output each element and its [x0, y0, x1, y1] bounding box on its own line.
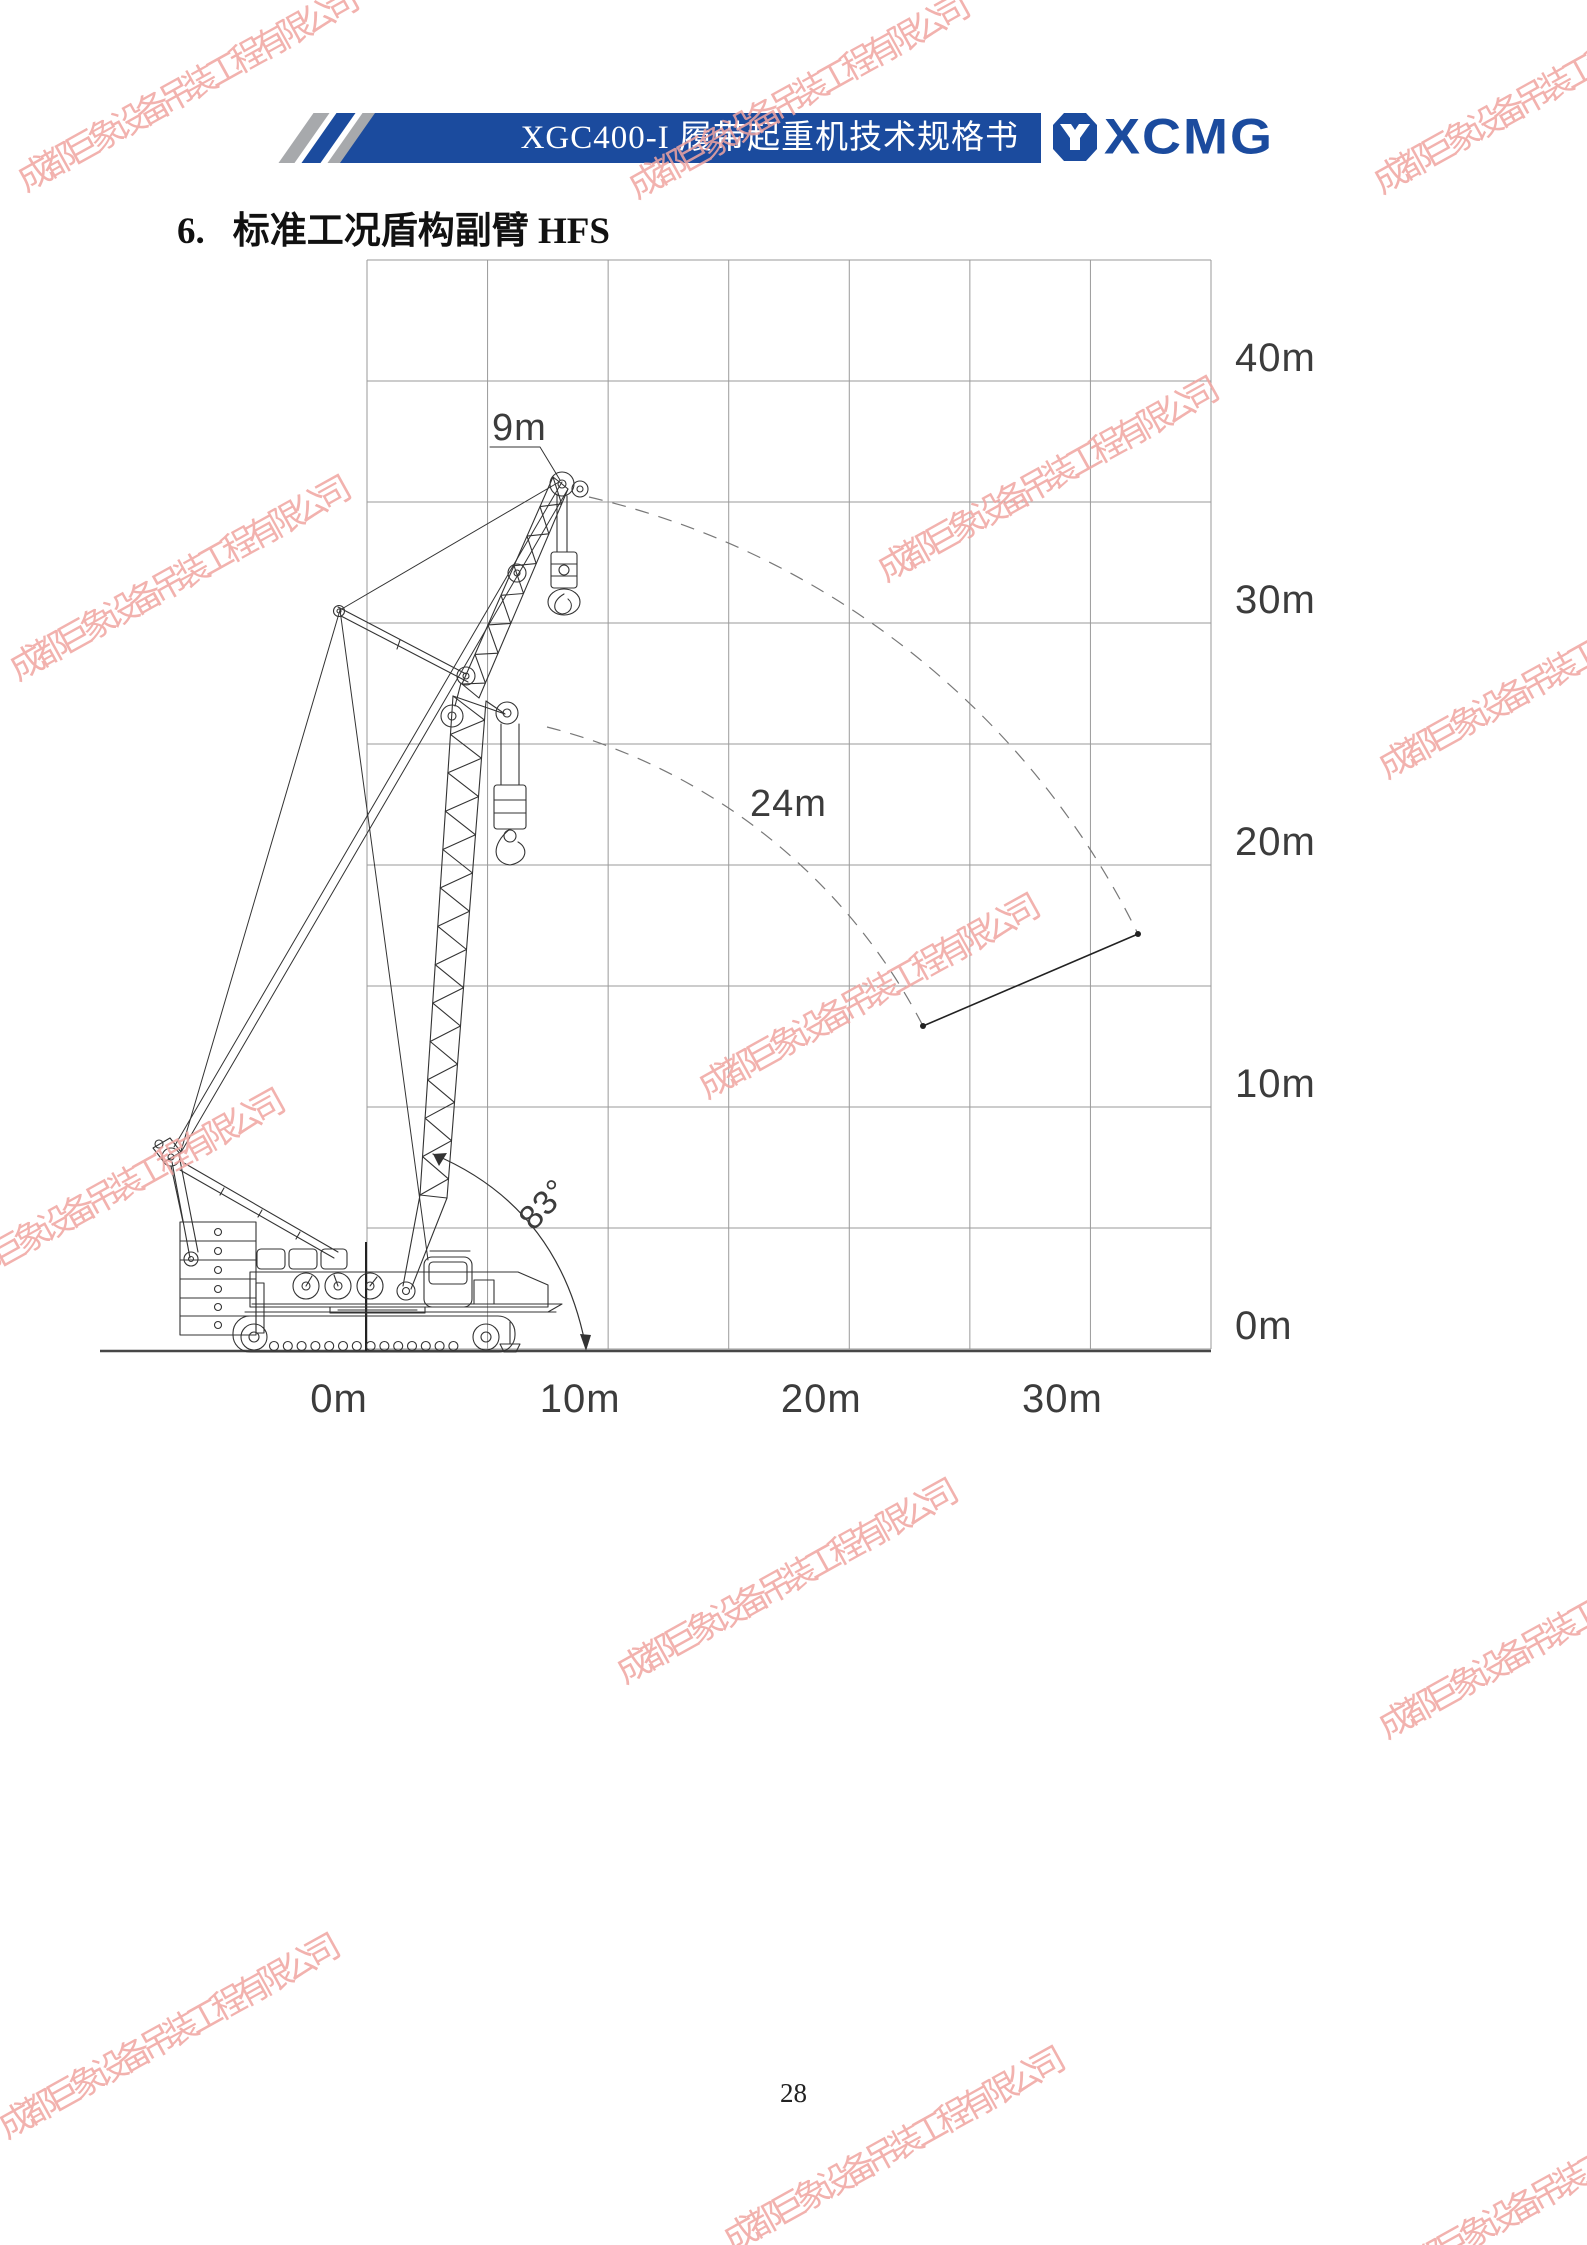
jib-length-label: 9m — [492, 407, 547, 449]
axis-tick-label: 0m — [310, 1377, 368, 1421]
boom-length-label: 24m — [750, 783, 827, 825]
document-page: XGC400-I 履带起重机技术规格书 XCMG 6.标准工况盾构副臂 HFS — [0, 0, 1587, 2245]
page-number: 28 — [0, 2078, 1587, 2109]
jib-lowest-position-line — [923, 934, 1138, 1026]
counterweight-stack — [180, 1222, 264, 1335]
main-boom — [397, 696, 518, 1300]
carbody — [250, 1272, 548, 1307]
jib-tip-path-arc — [589, 497, 1138, 934]
boom-angle-arc — [433, 1153, 591, 1351]
shield-jib — [441, 472, 588, 727]
diagram-annotations: 9m24m83° — [492, 407, 827, 1237]
rear-mast — [153, 1138, 338, 1266]
pendant-ropes — [174, 482, 568, 1260]
winch-drums — [293, 1273, 383, 1299]
axis-tick-label: 0m — [1235, 1304, 1293, 1348]
axis-tick-label: 30m — [1235, 578, 1316, 622]
axis-tick-label: 40m — [1235, 336, 1316, 380]
axis-tick-label: 10m — [1235, 1062, 1316, 1106]
range-arcs — [547, 497, 1141, 1029]
jib-length-leader-line — [490, 447, 560, 480]
jib-mast-strut — [334, 606, 469, 683]
boom-angle-label: 83° — [512, 1172, 577, 1238]
axis-tick-label: 30m — [1022, 1377, 1103, 1421]
axis-tick-label: 20m — [781, 1377, 862, 1421]
axis-tick-label: 10m — [540, 1377, 621, 1421]
jib-hook-block — [548, 494, 580, 615]
boom-head-path-arc — [547, 727, 923, 1026]
crane-range-diagram: 40m30m20m10m0m0m10m20m30m 9m24m83° — [0, 0, 1587, 2245]
main-hook-block — [494, 724, 526, 865]
axis-tick-label: 20m — [1235, 820, 1316, 864]
crawler-track — [233, 1316, 515, 1352]
track-rollers — [270, 1342, 458, 1351]
operator-cab — [424, 1251, 494, 1307]
